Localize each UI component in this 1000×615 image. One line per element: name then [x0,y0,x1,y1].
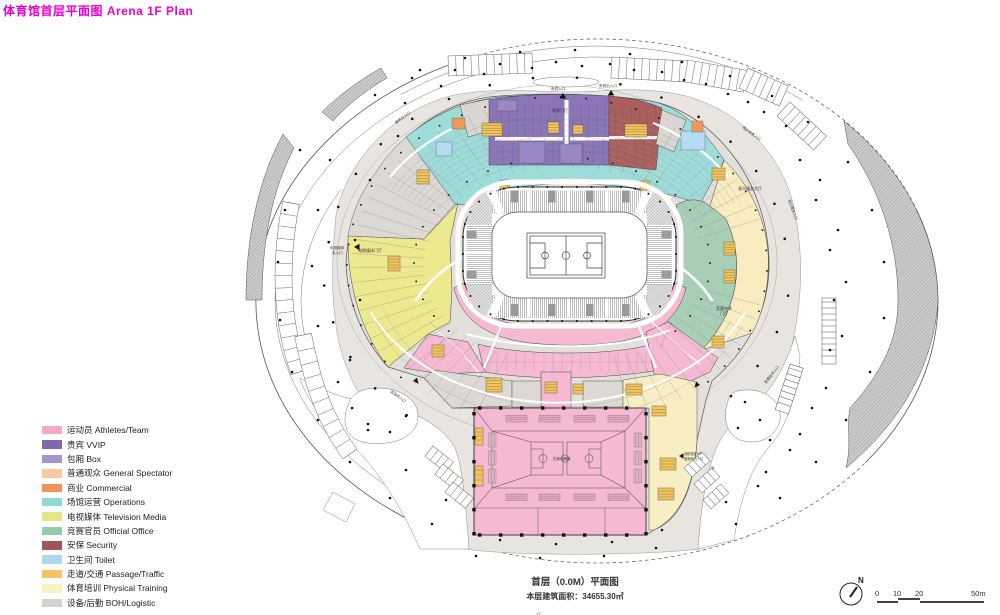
svg-text:热身训练馆: 热身训练馆 [553,456,571,461]
svg-text:门厅: 门厅 [720,310,728,316]
svg-text:训练馆及VIP: 训练馆及VIP [684,451,702,456]
svg-text:电视媒体门厅: 电视媒体门厅 [358,247,382,253]
svg-text:观众服务大厅: 观众服务大厅 [738,185,762,191]
svg-text:电视媒体: 电视媒体 [330,245,345,250]
svg-text:出入口: 出入口 [332,250,343,255]
svg-text:贵宾入口: 贵宾入口 [551,86,566,91]
svg-text:贵宾门厅: 贵宾门厅 [552,107,568,113]
svg-text:贵宾出入口: 贵宾出入口 [599,83,617,88]
svg-text:健身房出入口: 健身房出入口 [684,456,703,461]
